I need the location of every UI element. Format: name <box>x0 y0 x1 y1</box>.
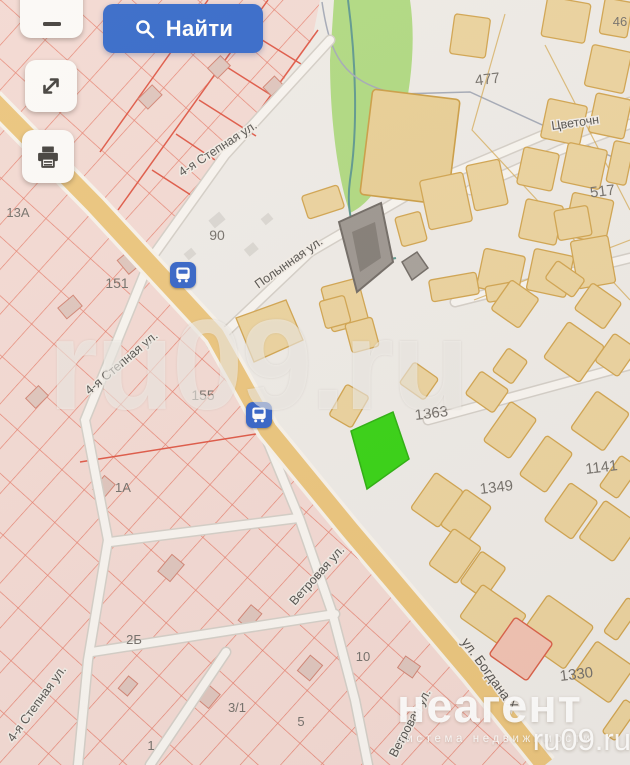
parcel-number-155: 155 <box>191 387 215 403</box>
building <box>419 172 472 230</box>
search-button-label: Найти <box>166 16 233 42</box>
expand-button[interactable] <box>25 60 77 112</box>
expand-icon <box>38 73 64 99</box>
printer-icon <box>34 143 62 171</box>
building <box>449 14 490 59</box>
bus-icon <box>173 265 193 285</box>
zoom-out-button[interactable] <box>20 0 83 38</box>
parcel-number-13a: 13А <box>6 205 29 220</box>
map-screenshot: 4-я Степная ул. Полынная ул. 4-я Степная… <box>0 0 630 765</box>
building <box>584 44 630 93</box>
parcel-number-1a: 1А <box>115 480 131 495</box>
parcel-number-151: 151 <box>105 275 129 291</box>
parcel-number-2b: 2Б <box>126 632 142 647</box>
agency-logo-site: ru09.ru <box>533 724 630 755</box>
agency-logo: неагент система недвижимости ru09.ru <box>397 682 630 746</box>
parcel-number-90: 90 <box>209 227 225 243</box>
zone-number-517: 517 <box>589 182 616 202</box>
parcel-number-46: 46 <box>613 14 627 29</box>
building <box>541 0 591 44</box>
zone-number-477: 477 <box>474 70 501 90</box>
search-button[interactable]: Найти <box>103 4 263 53</box>
bus-icon <box>249 405 269 425</box>
map-canvas[interactable]: 4-я Степная ул. Полынная ул. 4-я Степная… <box>0 0 630 765</box>
search-icon <box>133 17 157 41</box>
minus-icon <box>41 20 63 28</box>
building <box>554 205 593 240</box>
parcel-number-10: 10 <box>356 649 370 664</box>
parcel-number-5: 5 <box>297 714 304 729</box>
print-button[interactable] <box>22 130 74 183</box>
building <box>516 147 559 192</box>
parcel-number-1: 1 <box>147 738 154 753</box>
parcel-number-31: 3/1 <box>228 700 246 715</box>
transit-stop-icon[interactable] <box>246 402 272 428</box>
transit-stop-icon[interactable] <box>170 262 196 288</box>
